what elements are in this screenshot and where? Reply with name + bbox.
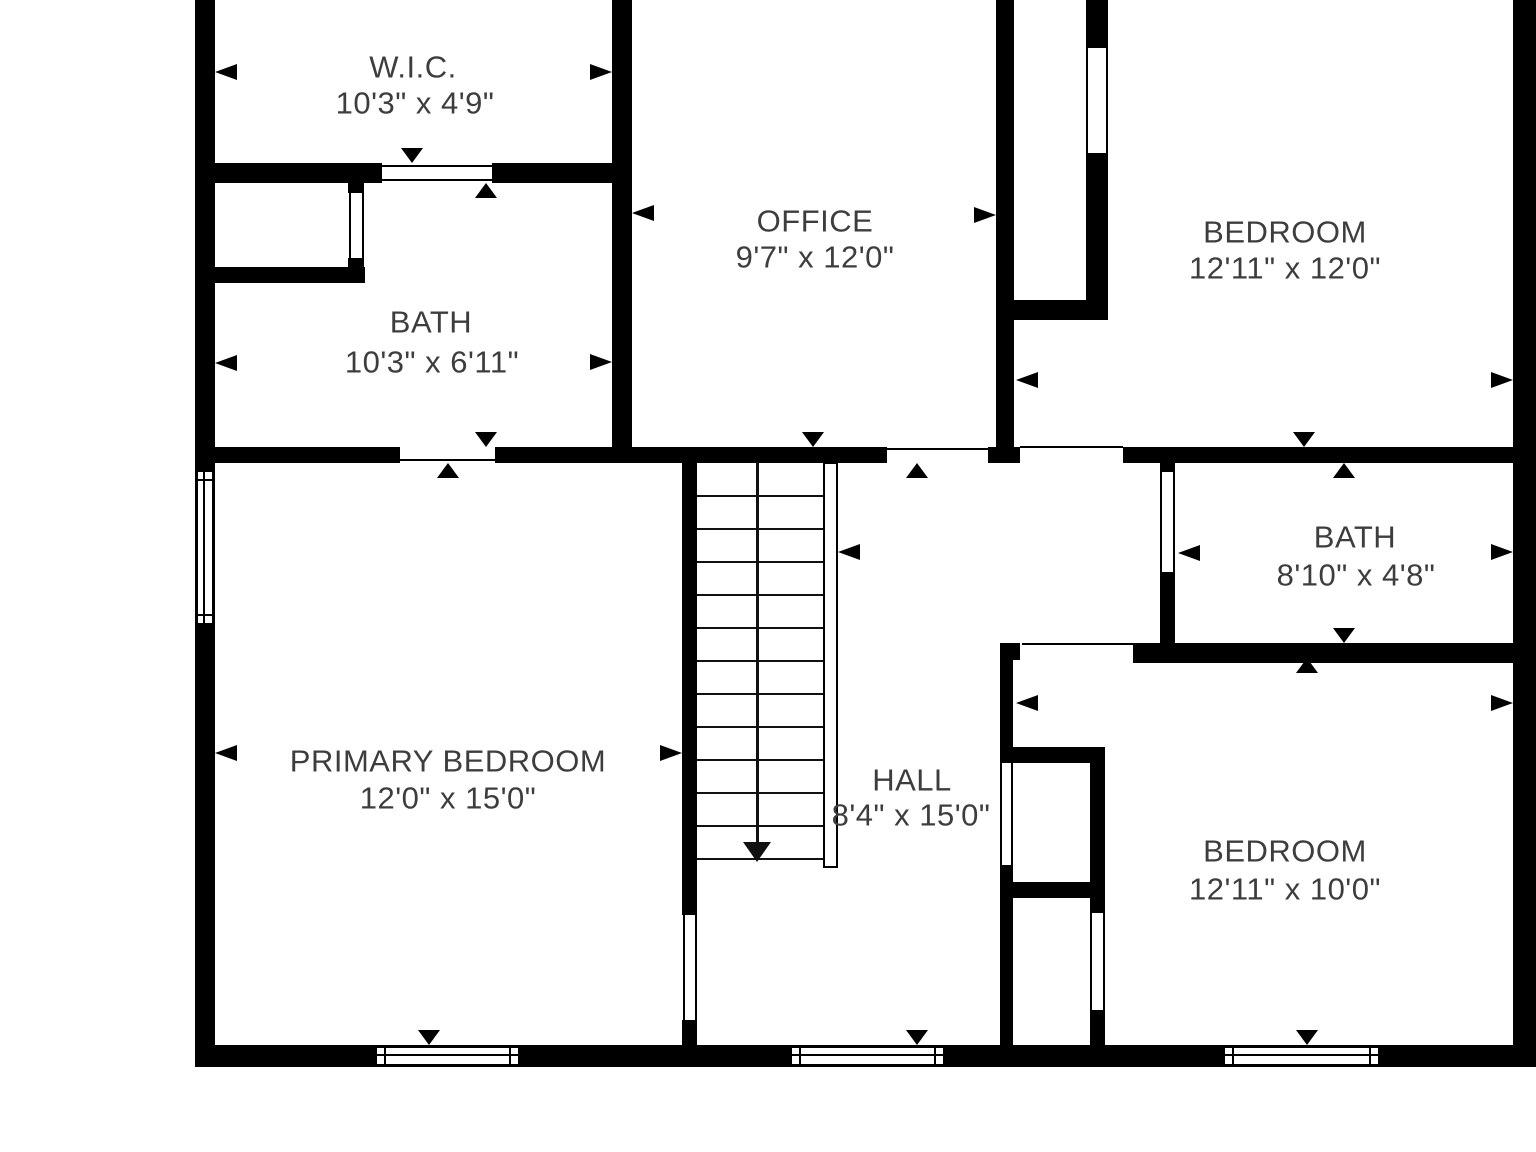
- dimension-arrow-up-icon: [1296, 658, 1318, 673]
- room-label-bath2: BATH: [1314, 522, 1396, 553]
- window-cap: [384, 1048, 386, 1064]
- wall: [1086, 0, 1108, 48]
- door-opening-line: [1022, 643, 1133, 645]
- stair-direction-arrowhead: [743, 842, 771, 862]
- dimension-arrow-down-icon: [475, 432, 497, 447]
- wall: [1000, 643, 1013, 763]
- dimension-arrow-up-icon: [437, 463, 459, 478]
- dimension-arrow-left-icon: [632, 205, 654, 221]
- wall: [1090, 1010, 1105, 1047]
- dimension-arrow-down-icon: [1333, 628, 1355, 643]
- wall: [682, 1020, 697, 1047]
- wall: [1090, 747, 1105, 913]
- door-opening-line: [400, 459, 495, 461]
- floor-plan: W.I.C.10'3" x 4'9"BATH10'3" x 6'11"OFFIC…: [0, 0, 1536, 1152]
- window-cap: [509, 1048, 511, 1064]
- wall: [1160, 458, 1175, 472]
- door-opening-line: [695, 915, 697, 1020]
- dimension-arrow-down-icon: [401, 148, 423, 163]
- dimension-arrow-up-icon: [475, 183, 497, 198]
- door-opening-line: [382, 179, 492, 181]
- dimension-arrow-right-icon: [974, 207, 996, 223]
- stair-tread: [697, 495, 823, 497]
- dimension-arrow-right-icon: [590, 64, 612, 80]
- stair-direction-arrow: [756, 462, 759, 842]
- dimension-arrow-left-icon: [215, 64, 237, 80]
- wall: [1513, 0, 1536, 1067]
- wall: [1000, 643, 1020, 660]
- room-dimensions-bath1: 10'3" x 6'11": [345, 347, 519, 378]
- room-label-bedroom1: BEDROOM: [1203, 217, 1367, 248]
- door-opening-line: [362, 190, 364, 258]
- room-dimensions-wic: 10'3" x 4'9": [336, 88, 495, 119]
- wall: [1086, 153, 1108, 320]
- wall: [348, 163, 364, 193]
- stair-tread: [697, 561, 823, 563]
- dimension-arrow-left-icon: [838, 544, 860, 560]
- wall: [682, 462, 697, 915]
- room-dimensions-primary: 12'0" x 15'0": [360, 783, 537, 814]
- window-pane-line: [1225, 1054, 1378, 1056]
- window-cap: [1232, 1048, 1234, 1064]
- dimension-arrow-left-icon: [1016, 372, 1038, 388]
- room-dimensions-bath2: 8'10" x 4'8": [1277, 560, 1436, 591]
- door-opening-line: [1173, 472, 1175, 572]
- window: [375, 1046, 520, 1066]
- dimension-arrow-down-icon: [1296, 1030, 1318, 1045]
- dimension-arrow-right-icon: [660, 745, 682, 761]
- door-opening-line: [1160, 472, 1162, 572]
- dimension-arrow-up-icon: [906, 463, 928, 478]
- door-opening-line: [887, 448, 990, 450]
- window-cap: [198, 614, 212, 616]
- dimension-arrow-down-icon: [906, 1030, 928, 1045]
- room-label-bedroom2: BEDROOM: [1203, 836, 1367, 867]
- dimension-arrow-left-icon: [1016, 695, 1038, 711]
- room-label-hall: HALL: [872, 765, 952, 796]
- dimension-arrow-left-icon: [215, 745, 237, 761]
- wall: [495, 447, 887, 463]
- window-cap: [799, 1048, 801, 1064]
- stair-tread: [697, 726, 823, 728]
- room-dimensions-office: 9'7" x 12'0": [736, 242, 895, 273]
- wall: [1123, 447, 1513, 463]
- wall: [215, 267, 365, 283]
- room-dimensions-bedroom2: 12'11" x 10'0": [1189, 874, 1381, 905]
- dimension-arrow-right-icon: [1491, 695, 1513, 711]
- stair-tread: [697, 825, 823, 827]
- window-cap: [934, 1048, 936, 1064]
- window-pane-line: [377, 1054, 518, 1056]
- door-opening-line: [683, 915, 685, 1020]
- dimension-arrow-down-icon: [802, 432, 824, 447]
- stair-tread: [697, 792, 823, 794]
- room-label-primary: PRIMARY BEDROOM: [290, 746, 606, 777]
- stair-tread: [697, 693, 823, 695]
- wall: [1014, 300, 1108, 320]
- wall: [988, 447, 1020, 463]
- stair-tread: [697, 528, 823, 530]
- door-opening-line: [1103, 913, 1105, 1010]
- room-label-wic: W.I.C.: [369, 52, 456, 83]
- window: [196, 470, 214, 625]
- door-opening-line: [1106, 48, 1108, 153]
- door-opening-line: [1086, 48, 1088, 153]
- wall: [1160, 572, 1175, 653]
- stair-tread: [697, 594, 823, 596]
- door-opening-line: [1090, 913, 1092, 1010]
- stair-tread: [697, 627, 823, 629]
- wall: [195, 447, 400, 463]
- dimension-arrow-right-icon: [1491, 372, 1513, 388]
- door-opening-line: [349, 190, 351, 258]
- dimension-arrow-down-icon: [1293, 432, 1315, 447]
- door-opening-line: [382, 165, 492, 167]
- room-label-office: OFFICE: [757, 206, 874, 237]
- dimension-arrow-right-icon: [590, 354, 612, 370]
- dimension-arrow-up-icon: [1333, 463, 1355, 478]
- window-cap: [198, 479, 212, 481]
- window-pane-line: [203, 472, 205, 623]
- dimension-arrow-left-icon: [215, 355, 237, 371]
- door-opening-line: [1011, 763, 1013, 865]
- room-dimensions-bedroom1: 12'11" x 12'0": [1189, 253, 1381, 284]
- room-dimensions-hall: 8'4" x 15'0": [832, 800, 991, 831]
- dimension-arrow-down-icon: [418, 1030, 440, 1045]
- stair-tread: [697, 660, 823, 662]
- window: [1223, 1046, 1380, 1066]
- wall: [612, 0, 632, 463]
- window-pane-line: [792, 1054, 943, 1056]
- stair-tread: [697, 759, 823, 761]
- wall: [1133, 643, 1513, 663]
- dimension-arrow-left-icon: [1178, 545, 1200, 561]
- dimension-arrow-right-icon: [1491, 544, 1513, 560]
- door-opening-line: [1000, 763, 1002, 865]
- door-opening-line: [1020, 446, 1123, 448]
- wall: [492, 163, 632, 183]
- window: [790, 1046, 945, 1066]
- wall: [996, 0, 1014, 448]
- wall: [1000, 882, 1090, 898]
- window-cap: [1369, 1048, 1371, 1064]
- room-label-bath1: BATH: [390, 307, 472, 338]
